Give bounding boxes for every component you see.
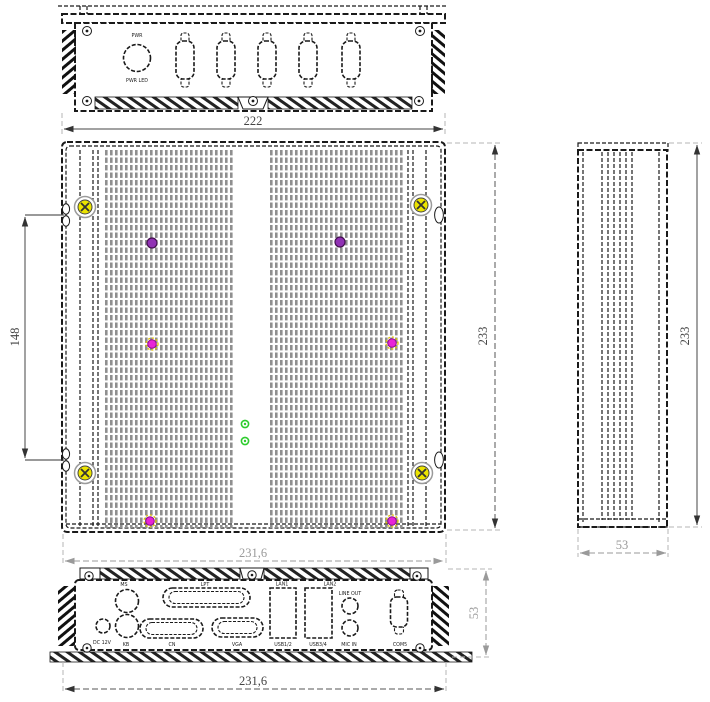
- power-button: [124, 45, 151, 72]
- top-view: PWR PWR LED: [58, 6, 448, 111]
- usb-stack-2: [305, 588, 332, 638]
- screw: [248, 571, 256, 579]
- side-view-body: [578, 150, 667, 527]
- heatsink-teeth-right: [432, 586, 449, 646]
- dc-jack: [96, 619, 110, 633]
- pwr-label: PWR: [132, 33, 144, 39]
- label-lan2: LAN2: [324, 582, 337, 588]
- screw: [413, 572, 421, 580]
- screw-yellow: [75, 463, 96, 484]
- dim-text-222: 222: [244, 114, 263, 128]
- marker-dot-green: [241, 420, 248, 427]
- fin-field-left: [103, 150, 233, 528]
- label-usb12: USB1/2: [274, 642, 292, 648]
- side-view: [578, 143, 668, 527]
- dim-text-53-side: 53: [616, 538, 629, 552]
- dim-text-148: 148: [8, 328, 22, 347]
- screw: [83, 27, 92, 36]
- hatched-flange-right: [268, 97, 412, 109]
- hatched-flange-left: [100, 568, 240, 579]
- fin-field-right: [270, 150, 403, 528]
- engineering-drawing-canvas: PWR PWR LED 222: [0, 0, 710, 702]
- pwr-led-label: PWR LED: [126, 78, 148, 84]
- label-dc-12v: DC 12V: [93, 640, 112, 646]
- lpt-connector: [163, 588, 250, 607]
- label-lpt: LPT: [201, 582, 210, 588]
- label-com5: COM5: [393, 642, 407, 648]
- screw: [83, 97, 92, 106]
- marker-dot-purple: [335, 237, 345, 247]
- dim-text-231-6-front: 231,6: [239, 546, 267, 560]
- top-plate-edge: [62, 14, 445, 23]
- mic-in-jack: [342, 620, 358, 636]
- screw-yellow: [412, 463, 433, 484]
- heatsink-teeth-right: [431, 30, 445, 94]
- label-mic-in: MIC IN: [341, 642, 357, 648]
- line-out-jack: [342, 598, 358, 614]
- label-ms: MS: [120, 582, 127, 588]
- label-line-out: LINE OUT: [339, 591, 362, 597]
- screw: [416, 27, 425, 36]
- screw: [85, 572, 93, 580]
- marker-dot-purple: [147, 238, 157, 248]
- vga-connector: [212, 618, 263, 637]
- label-cn: CN: [169, 642, 176, 648]
- screw-yellow: [75, 197, 96, 218]
- hatched-flange-left: [95, 97, 238, 109]
- dim-text-233-front: 233: [476, 327, 490, 346]
- usb-stack-1: [270, 588, 296, 638]
- heatsink-teeth-left: [58, 586, 75, 646]
- label-usb34: USB3/4: [309, 642, 327, 648]
- screw-yellow: [411, 195, 432, 216]
- label-vga: VGA: [232, 642, 243, 648]
- ps2-mouse-port: [116, 590, 139, 613]
- screw: [416, 644, 424, 652]
- label-lan1: LAN1: [276, 582, 289, 588]
- bottom-view: MS LPT LAN1 LAN2 LINE OUT DC 12V KB CN V…: [50, 568, 472, 662]
- cn-connector: [140, 619, 203, 638]
- screw: [415, 97, 424, 106]
- dim-text-53-bottom: 53: [467, 607, 481, 620]
- dim-text-231-6-bottom: 231,6: [239, 674, 267, 688]
- dim-text-233-side: 233: [678, 327, 692, 346]
- front-view: [62, 142, 445, 532]
- marker-dot-green: [241, 437, 248, 444]
- drawing-svg: PWR PWR LED 222: [0, 0, 710, 702]
- screw: [83, 644, 91, 652]
- ps2-keyboard-port: [116, 615, 139, 638]
- hatched-mount-bar: [50, 652, 472, 662]
- label-kb: KB: [123, 642, 129, 648]
- hatched-flange-right: [264, 568, 410, 579]
- heatsink-teeth-left: [62, 30, 76, 94]
- screw: [249, 97, 258, 106]
